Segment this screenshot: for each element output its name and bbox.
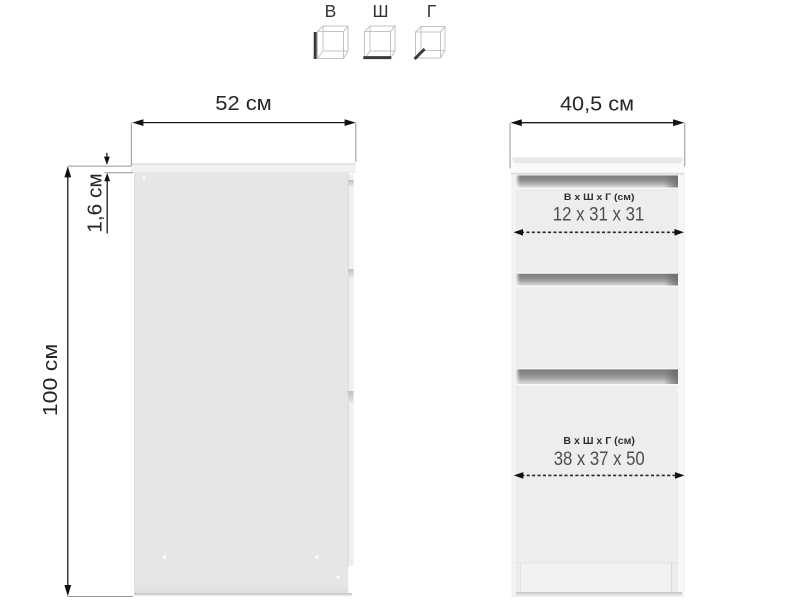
svg-text:100 см: 100 см xyxy=(39,344,62,417)
svg-text:52 см: 52 см xyxy=(215,92,272,115)
svg-text:Ш: Ш xyxy=(372,1,388,21)
svg-text:В: В xyxy=(325,1,337,21)
svg-text:1,6 см: 1,6 см xyxy=(84,173,107,233)
svg-text:40,5 см: 40,5 см xyxy=(560,93,634,116)
svg-text:В х Ш х Г (см): В х Ш х Г (см) xyxy=(563,436,635,447)
svg-text:В х Ш х Г (см): В х Ш х Г (см) xyxy=(564,192,635,203)
svg-text:38 x 37 x 50: 38 x 37 x 50 xyxy=(554,448,645,470)
svg-text:12 x 31 x 31: 12 x 31 x 31 xyxy=(553,204,645,226)
svg-text:Г: Г xyxy=(427,1,437,21)
